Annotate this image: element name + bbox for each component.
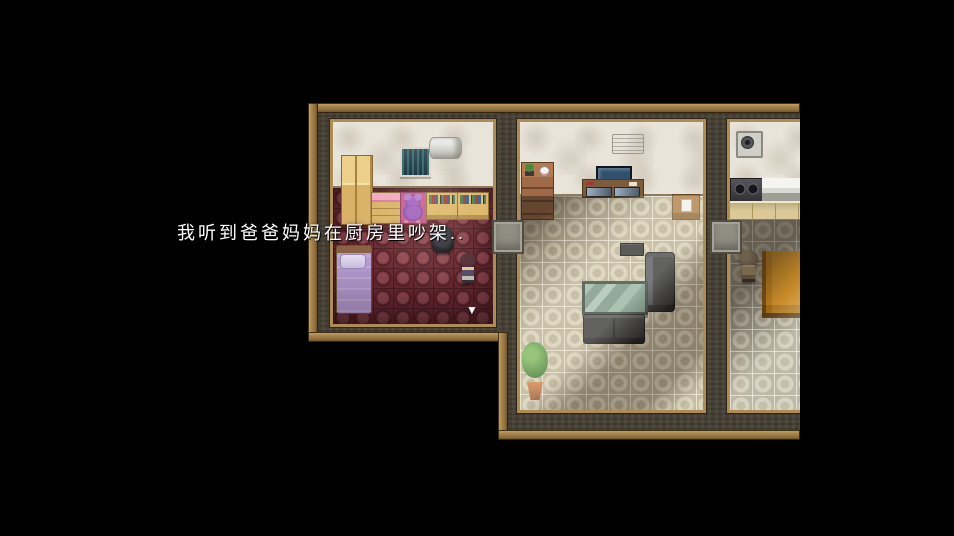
girl-character <box>459 250 477 286</box>
room-living <box>517 119 706 413</box>
house-frame-bottom-left <box>308 332 508 342</box>
house-frame-step <box>498 332 508 440</box>
doorway-mat-kitchen <box>710 220 742 254</box>
bedroom-window <box>400 147 431 177</box>
game-screen[interactable]: 我听到爸爸妈妈在厨房里吵架.. ▼ <box>0 0 954 536</box>
doorway-mat-bedroom <box>492 220 524 254</box>
bedroom-air-conditioner <box>429 137 462 159</box>
kitchen-counter <box>762 178 800 201</box>
message-continue-arrow[interactable]: ▼ <box>466 304 478 316</box>
side-table <box>672 194 700 220</box>
potted-plant <box>521 342 549 402</box>
house-frame-bottom-right <box>498 430 800 440</box>
house-frame-top <box>308 103 800 113</box>
wardrobe <box>341 155 373 225</box>
sofa-vertical <box>645 252 675 312</box>
purple-bed <box>336 245 372 314</box>
kitchen-cabinets <box>730 201 800 221</box>
ventilation-fan-icon <box>736 131 763 158</box>
dialogue-text: 我听到爸爸妈妈在厨房里吵架.. <box>177 219 466 245</box>
bookshelf <box>457 192 489 220</box>
bookshelf <box>426 192 458 220</box>
glass-coffee-table <box>582 281 648 315</box>
sofa-horizontal <box>583 314 645 344</box>
dining-table <box>762 251 800 318</box>
display-shelf <box>521 162 554 220</box>
living-room-air-conditioner <box>612 134 644 154</box>
stereo-box <box>620 243 644 256</box>
stove <box>730 178 764 203</box>
house-map <box>308 103 800 440</box>
tv-desk <box>582 179 644 198</box>
room-kitchen <box>727 119 800 413</box>
